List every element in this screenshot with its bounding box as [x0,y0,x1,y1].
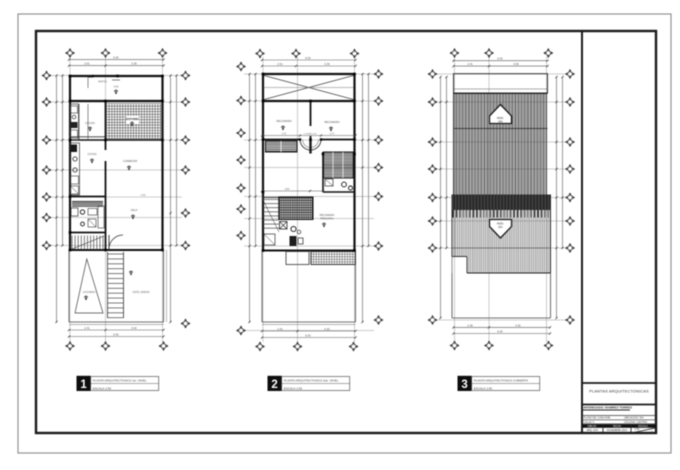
svg-text:2.61: 2.61 [84,62,90,66]
svg-text:PLANO DE: CASA HAB.: PLANO DE: CASA HAB. [584,417,612,420]
svg-text:DIBUJO: DIBUJO [588,425,597,428]
svg-text:3.59: 3.59 [513,62,519,66]
svg-text:COMEDOR: COMEDOR [123,159,137,163]
svg-text:4.30: 4.30 [515,323,521,327]
svg-text:ESCALA 1:50: ESCALA 1:50 [474,386,493,390]
svg-text:6.00: 6.00 [113,56,119,60]
svg-text:2.41: 2.41 [277,327,283,331]
svg-text:3: 3 [461,379,467,391]
svg-text:COCINA: COCINA [85,122,95,125]
svg-text:6.00: 6.00 [305,334,311,338]
svg-text:PLANTAS ARQUITECTONICAS: PLANTAS ARQUITECTONICAS [589,389,649,394]
svg-text:6.00: 6.00 [497,57,503,61]
svg-text:2.61: 2.61 [277,62,283,66]
svg-text:PATIO: PATIO [98,80,107,84]
svg-text:ESCALA: ESCALA [638,425,648,428]
svg-text:3.39: 3.39 [131,62,137,66]
svg-text:3.39: 3.39 [324,62,330,66]
svg-text:4.30: 4.30 [114,86,119,89]
svg-text:UBICACION: S/N: UBICACION: S/N [624,417,644,420]
svg-text:ANTE JARDIN: ANTE JARDIN [132,290,149,294]
svg-text:DICIEMBRE 2014: DICIEMBRE 2014 [607,429,628,432]
svg-text:INTERESADO: RAMIREZ TORRES: INTERESADO: RAMIREZ TORRES [584,406,632,410]
svg-text:4.20: 4.20 [324,327,330,331]
svg-text:PLANTA ARQUITECTONICA CUBIERT: PLANTA ARQUITECTONICA CUBIERTA [474,379,528,383]
svg-text:RECAMARA: RECAMARA [320,213,335,217]
svg-text:6.00: 6.00 [305,56,311,60]
svg-text:2: 2 [271,379,277,391]
svg-text:ESCALA 1:50: ESCALA 1:50 [284,386,303,390]
svg-text:25%: 25% [498,121,503,123]
svg-text:PEND.: PEND. [497,224,504,226]
svg-text:3.80: 3.80 [285,189,290,191]
svg-text:COCHERA: COCHERA [83,291,96,294]
svg-text:2.49: 2.49 [467,323,473,327]
svg-text:SALA: SALA [131,208,138,212]
svg-text:CORREDOR: CORREDOR [304,134,317,136]
svg-text:ESCALA 1:50: ESCALA 1:50 [93,386,112,390]
svg-text:ESTUDIO: ESTUDIO [126,117,139,121]
svg-text:FECHA: FECHA [613,425,622,428]
svg-text:COCINA: COCINA [87,153,97,156]
svg-text:RECAMARA: RECAMARA [276,119,291,123]
svg-text:2.07: 2.07 [330,133,335,136]
svg-text:2.41: 2.41 [282,133,287,136]
svg-text:2.41: 2.41 [84,326,90,330]
svg-text:1: 1 [80,379,87,391]
svg-text:PEND.: PEND. [497,118,504,120]
svg-text:RECAMARA: RECAMARA [324,120,339,124]
svg-text:ARQ. M.R.: ARQ. M.R. [586,429,598,432]
svg-text:1:50: 1:50 [635,428,640,431]
svg-text:PRINCIPAL: PRINCIPAL [320,217,334,221]
svg-text:4.20: 4.20 [131,326,137,330]
svg-text:6.00: 6.00 [113,333,119,337]
svg-text:2.41: 2.41 [467,62,473,66]
svg-text:4.30: 4.30 [141,194,146,197]
svg-text:PLANTA ARQUITECTONICA 1er. NI: PLANTA ARQUITECTONICA 1er. NIVEL [93,379,147,383]
svg-text:PLANTA ARQUITECTONICA 2do. NI: PLANTA ARQUITECTONICA 2do. NIVEL [284,379,339,383]
svg-text:25%: 25% [498,227,503,229]
svg-text:6.00: 6.00 [497,330,503,334]
